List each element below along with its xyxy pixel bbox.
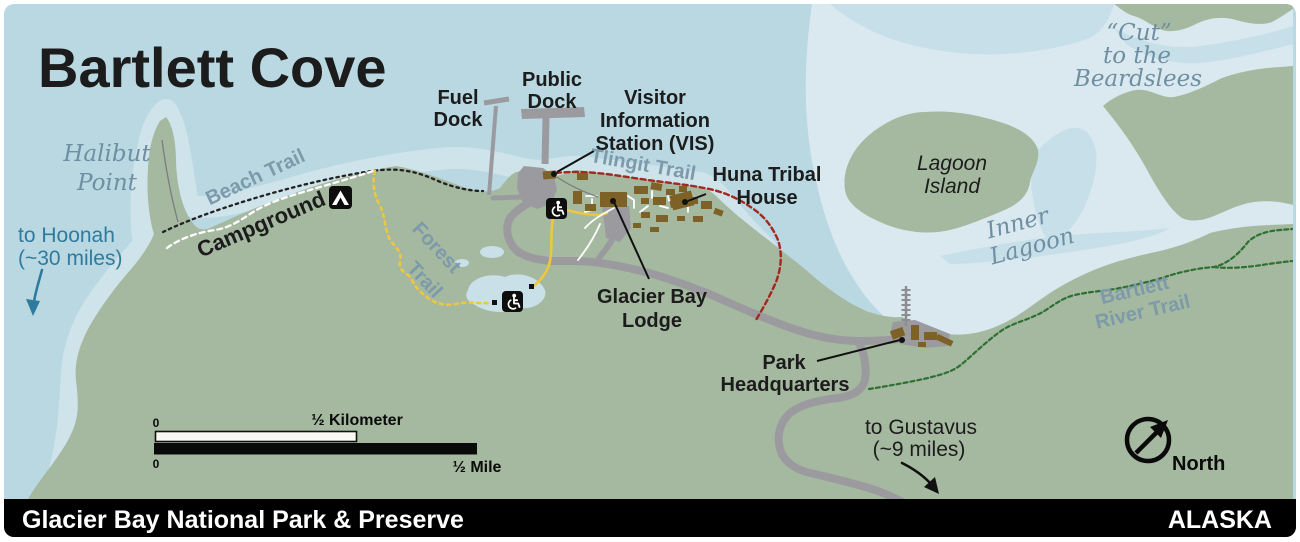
- label-lodge-line1: Glacier Bay: [597, 286, 708, 308]
- building: [666, 189, 675, 195]
- label-to-hoonah-line2: (~30 miles): [18, 247, 122, 270]
- building: [650, 227, 659, 232]
- huna-location-dot: [682, 199, 688, 205]
- label-halibut-point-line2: Point: [76, 170, 138, 196]
- label-to-gustavus-line1: to Gustavus: [865, 416, 977, 439]
- public-dock-stem: [545, 118, 546, 164]
- map-title: Bartlett Cove: [38, 36, 387, 99]
- label-lagoon-island-line2: Island: [924, 175, 981, 198]
- wheelchair-icon: [502, 291, 523, 312]
- trailhead-marker: [492, 300, 497, 305]
- building: [577, 173, 588, 180]
- label-cut-line3: Beardslees: [1073, 66, 1202, 92]
- scale-kilometer-label: ½ Kilometer: [311, 412, 403, 429]
- label-fuel-dock-line2: Dock: [434, 109, 484, 131]
- headquarters-pier-rungs: [902, 290, 911, 320]
- label-to-hoonah-line1: to Hoonah: [18, 224, 115, 247]
- headquarters-location-dot: [899, 337, 905, 343]
- building: [677, 216, 685, 221]
- label-lodge-line2: Lodge: [622, 310, 682, 332]
- building: [653, 197, 666, 205]
- scale-kilometer-bar: [156, 432, 357, 442]
- label-north: North: [1172, 453, 1225, 475]
- building: [573, 191, 582, 204]
- label-fuel-dock-line1: Fuel: [437, 87, 478, 109]
- bartlett-cove-map-page: Bartlett Cove Halibut Point to Hoonah (~…: [0, 0, 1300, 542]
- label-halibut-point-line1: Halibut: [62, 141, 151, 167]
- scale-mile-label: ½ Mile: [453, 459, 502, 476]
- building: [585, 204, 596, 211]
- bartlett-cove-map: Bartlett Cove Halibut Point to Hoonah (~…: [0, 0, 1300, 542]
- footer-state-name: ALASKA: [1168, 506, 1272, 534]
- building: [641, 212, 650, 218]
- campground-tent-icon: [329, 186, 352, 209]
- label-vis-line1: Visitor: [624, 87, 686, 109]
- scale-zero-top: 0: [153, 416, 160, 430]
- building: [918, 342, 926, 347]
- small-pond: [480, 246, 504, 258]
- building: [693, 216, 703, 222]
- building: [656, 215, 668, 222]
- label-to-gustavus-line2: (~9 miles): [873, 438, 966, 461]
- wheelchair-icon: [546, 198, 567, 219]
- building: [679, 186, 687, 192]
- building: [911, 325, 919, 340]
- building: [634, 186, 648, 194]
- building: [924, 332, 937, 340]
- building: [633, 223, 641, 228]
- label-headquarters-line1: Park: [762, 352, 806, 374]
- label-public-dock-line1: Public: [522, 69, 582, 91]
- label-lagoon-island-line1: Lagoon: [917, 152, 987, 175]
- footer-park-name: Glacier Bay National Park & Preserve: [22, 506, 464, 534]
- building: [701, 201, 712, 209]
- label-huna-line2: House: [736, 187, 797, 209]
- scale-mile-bar: [154, 443, 477, 455]
- lodge-location-dot: [610, 198, 616, 204]
- trailhead-marker: [529, 284, 534, 289]
- scale-zero-bottom: 0: [153, 457, 160, 471]
- label-huna-line1: Huna Tribal: [713, 164, 822, 186]
- label-headquarters-line2: Headquarters: [721, 374, 850, 396]
- building: [641, 198, 649, 204]
- fuel-dock-arm: [493, 197, 522, 198]
- label-vis-line2: Information: [600, 110, 710, 132]
- label-public-dock-line2: Dock: [528, 91, 578, 113]
- vis-location-dot: [551, 171, 557, 177]
